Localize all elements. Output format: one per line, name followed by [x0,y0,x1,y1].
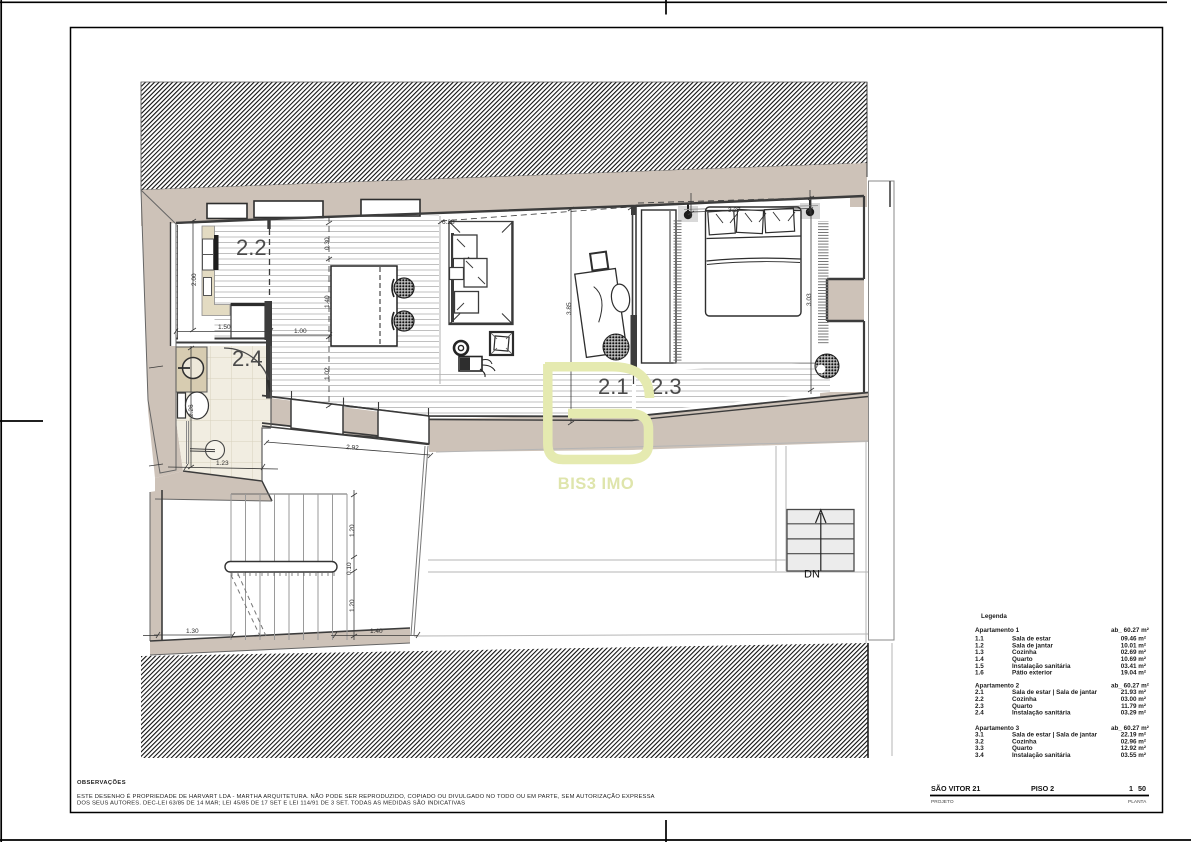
svg-text:3.37: 3.37 [728,207,741,214]
svg-text:2.92: 2.92 [346,444,359,452]
svg-text:OBSERVAÇÕES: OBSERVAÇÕES [77,779,126,786]
svg-text:Instalação sanitária: Instalação sanitária [1012,710,1071,717]
svg-text:1.40: 1.40 [370,628,383,635]
svg-text:DOS SEUS AUTORES. DEC-LEI 63/8: DOS SEUS AUTORES. DEC-LEI 63/85 DE 14 MA… [77,800,465,807]
svg-text:ESTE DESENHO É PROPRIEDADE DE: ESTE DESENHO É PROPRIEDADE DE HARVART LD… [77,793,655,800]
svg-text:Legenda: Legenda [981,613,1007,620]
svg-text:0.30: 0.30 [324,237,331,250]
svg-text:3.03: 3.03 [806,293,813,306]
svg-text:2.4: 2.4 [975,710,984,717]
svg-text:1.00: 1.00 [294,328,307,335]
svg-text:1: 1 [1129,784,1133,793]
svg-text:1.30: 1.30 [186,628,199,635]
svg-text:1.50: 1.50 [218,324,231,331]
svg-text:2.4: 2.4 [232,346,263,371]
svg-text:2.1: 2.1 [598,374,629,399]
svg-text:1.20: 1.20 [349,524,356,537]
svg-text:03.29 m²: 03.29 m² [1121,710,1146,717]
svg-text:6.28: 6.28 [442,219,455,226]
svg-text:2.2: 2.2 [236,235,267,260]
svg-text:3.4: 3.4 [975,752,984,759]
svg-text:1.6: 1.6 [975,670,984,677]
svg-text:PLANTA: PLANTA [1128,799,1147,805]
svg-text:1.40: 1.40 [324,295,331,308]
svg-text:Apartamento 1: Apartamento 1 [975,627,1020,634]
svg-text:1.02: 1.02 [324,367,331,380]
svg-text:19.04 m²: 19.04 m² [1121,670,1146,677]
svg-text:Instalação sanitária: Instalação sanitária [1012,752,1071,759]
svg-text:1.20: 1.20 [349,599,356,612]
svg-text:50: 50 [1138,784,1146,793]
svg-text:DN: DN [804,569,820,581]
svg-text:BIS3 IMO: BIS3 IMO [558,475,634,493]
svg-text:2.3: 2.3 [651,374,682,399]
svg-text:Pátio exterior: Pátio exterior [1012,670,1053,677]
svg-text:0.10: 0.10 [346,562,353,575]
svg-text:PROJETO: PROJETO [931,799,954,805]
svg-text:2.26: 2.26 [188,404,195,417]
svg-text:3.85: 3.85 [566,302,573,315]
svg-text:2.00: 2.00 [191,273,198,286]
svg-text:PISO 2: PISO 2 [1031,784,1054,793]
svg-text:03.55 m²: 03.55 m² [1121,752,1146,759]
svg-text:1.23: 1.23 [216,460,229,467]
svg-text:ab_ 60.27 m²: ab_ 60.27 m² [1111,627,1149,634]
svg-text:SÃO VITOR 21: SÃO VITOR 21 [931,784,980,793]
